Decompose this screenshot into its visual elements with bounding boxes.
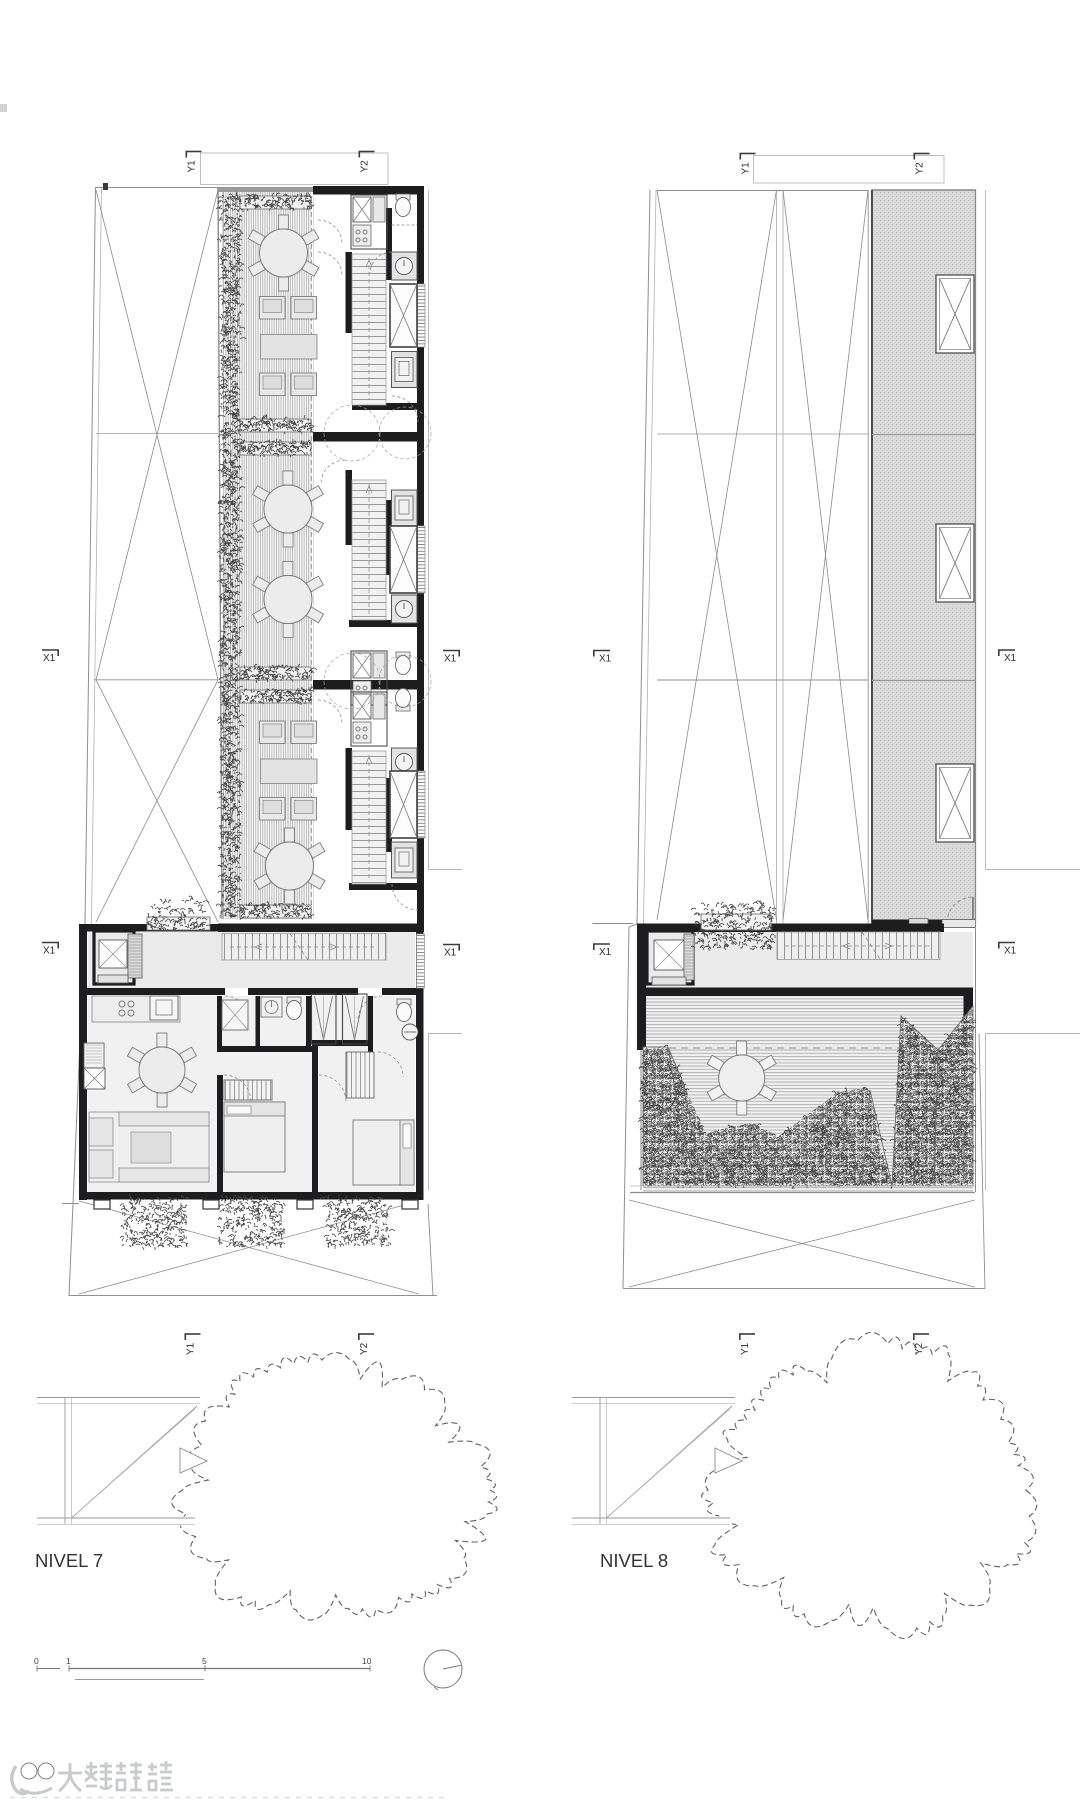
svg-text:X1: X1 [444, 654, 457, 665]
svg-text:Y1: Y1 [741, 162, 752, 175]
svg-text:X1: X1 [1004, 946, 1017, 957]
svg-text:NIVEL 8: NIVEL 8 [600, 1550, 668, 1571]
svg-text:X1: X1 [599, 947, 612, 958]
svg-text:5: 5 [202, 1656, 207, 1666]
svg-text:0: 0 [34, 1656, 39, 1666]
svg-text:NIVEL 7: NIVEL 7 [35, 1550, 103, 1571]
svg-text:Y1: Y1 [187, 160, 198, 173]
svg-text:1: 1 [66, 1656, 71, 1666]
svg-text:Y2: Y2 [359, 1342, 370, 1355]
svg-text:X1: X1 [1004, 653, 1017, 664]
svg-text:X1: X1 [43, 653, 56, 664]
svg-text:Y2: Y2 [915, 162, 926, 175]
svg-text:Y2: Y2 [360, 160, 371, 173]
svg-text:Y1: Y1 [740, 1342, 751, 1355]
svg-text:X1: X1 [599, 654, 612, 665]
svg-text:Y1: Y1 [186, 1342, 197, 1355]
svg-text:X1: X1 [444, 948, 457, 959]
svg-text:10: 10 [362, 1656, 372, 1666]
svg-text:X1: X1 [43, 946, 56, 957]
